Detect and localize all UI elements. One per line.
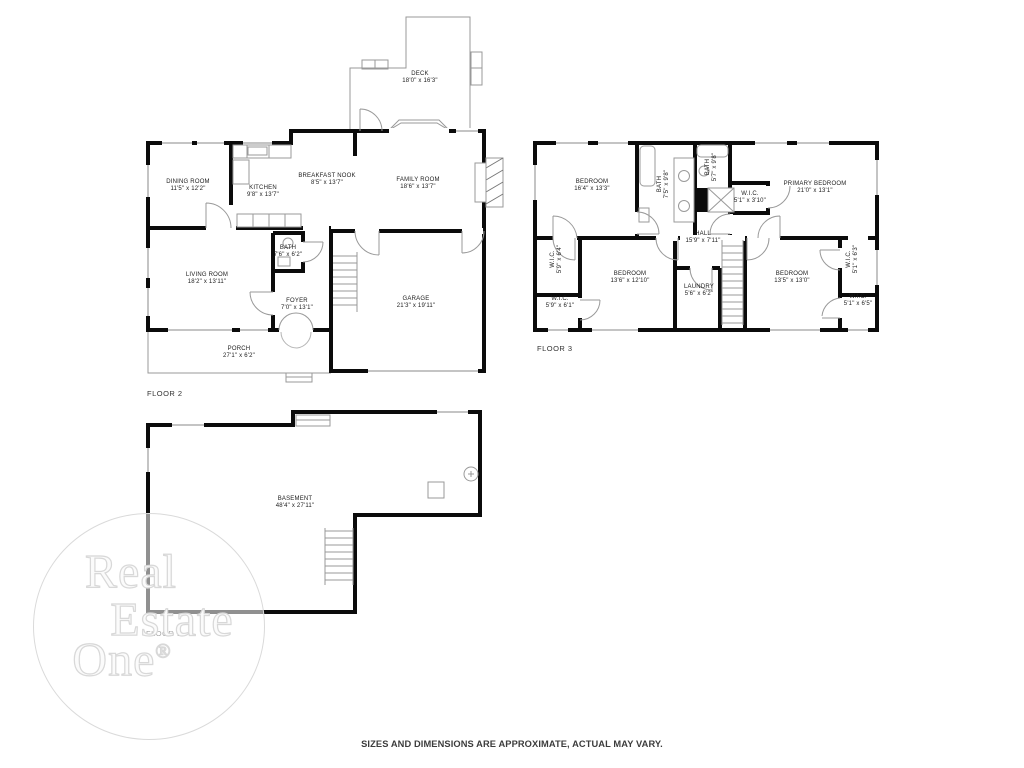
room-label-living-room: LIVING ROOM 18'2" x 13'11" [186, 272, 228, 286]
room-label-wic-primary: W.I.C. 5'1" x 3'10" [734, 191, 766, 205]
room-label-wic-left-bottom: W.I.C. 5'9" x 6'1" [546, 296, 574, 310]
floor1-label: FLOOR 1 [146, 629, 182, 638]
room-label-wic-right-top: W.I.C. 5'1" x 6'3" [846, 245, 860, 273]
floor2-plan [148, 17, 503, 382]
basement-windows [148, 412, 468, 472]
room-label-laundry: LAUNDRY 5'6" x 6'2" [684, 284, 714, 298]
room-label-wic-right-bottom: W.I.C. 5'1" x 6'5" [844, 294, 872, 308]
stairs-floor2 [333, 252, 357, 312]
basement-walls [148, 412, 480, 612]
floor2-windows [148, 131, 478, 371]
room-label-breakfast-nook: BREAKFAST NOOK 8'5" x 13'7" [298, 173, 355, 187]
stairs-floor3 [722, 240, 743, 325]
room-label-hall: HALL 15'9" x 7'11" [685, 231, 720, 245]
fireplace [475, 158, 503, 207]
room-label-kitchen: KITCHEN 9'8" x 13'7" [247, 185, 279, 199]
floor2-label: FLOOR 2 [147, 389, 183, 398]
chimney [694, 188, 708, 212]
floorplan-page: DECK 18'0" x 16'3" DINING ROOM 11'5" x 1… [0, 0, 1024, 768]
disclaimer-text: SIZES AND DIMENSIONS ARE APPROXIMATE, AC… [361, 739, 663, 749]
room-label-bedroom-3: BEDROOM 13'5" x 13'0" [774, 271, 810, 285]
room-label-dining-room: DINING ROOM 11'5" x 12'2" [166, 179, 210, 193]
room-label-foyer: FOYER 7'0" x 13'1" [281, 298, 313, 312]
room-label-basement: BASEMENT 48'4" x 27'11" [276, 496, 315, 510]
room-label-deck: DECK 18'0" x 16'3" [402, 71, 438, 85]
room-label-primary-bedroom: PRIMARY BEDROOM 21'0" x 13'1" [784, 181, 847, 195]
room-label-porch: PORCH 27'1" x 6'2" [223, 346, 255, 360]
floorplan-drawing [0, 0, 1024, 768]
room-label-family-room: FAMILY ROOM 18'6" x 13'7" [396, 177, 439, 191]
room-label-bedroom-2: BEDROOM 13'6" x 12'10" [610, 271, 649, 285]
floor3-label: FLOOR 3 [537, 344, 573, 353]
room-label-bath-2: BATH 5'7" x 9'8" [705, 153, 719, 181]
utility-box [428, 482, 444, 498]
room-label-bath-1: BATH 7'5" x 9'8" [657, 170, 671, 198]
room-label-bedroom-1: BEDROOM 16'4" x 13'3" [574, 179, 610, 193]
floor1-plan [148, 412, 480, 612]
room-label-bath-floor2: BATH 7'6" x 6'2" [274, 245, 302, 259]
sump-pump [464, 467, 478, 481]
room-label-garage: GARAGE 21'3" x 19'11" [397, 296, 436, 310]
stairs-basement [325, 528, 353, 585]
room-label-wic-left-top: W.I.C. 5'9" x 6'4" [550, 245, 564, 273]
